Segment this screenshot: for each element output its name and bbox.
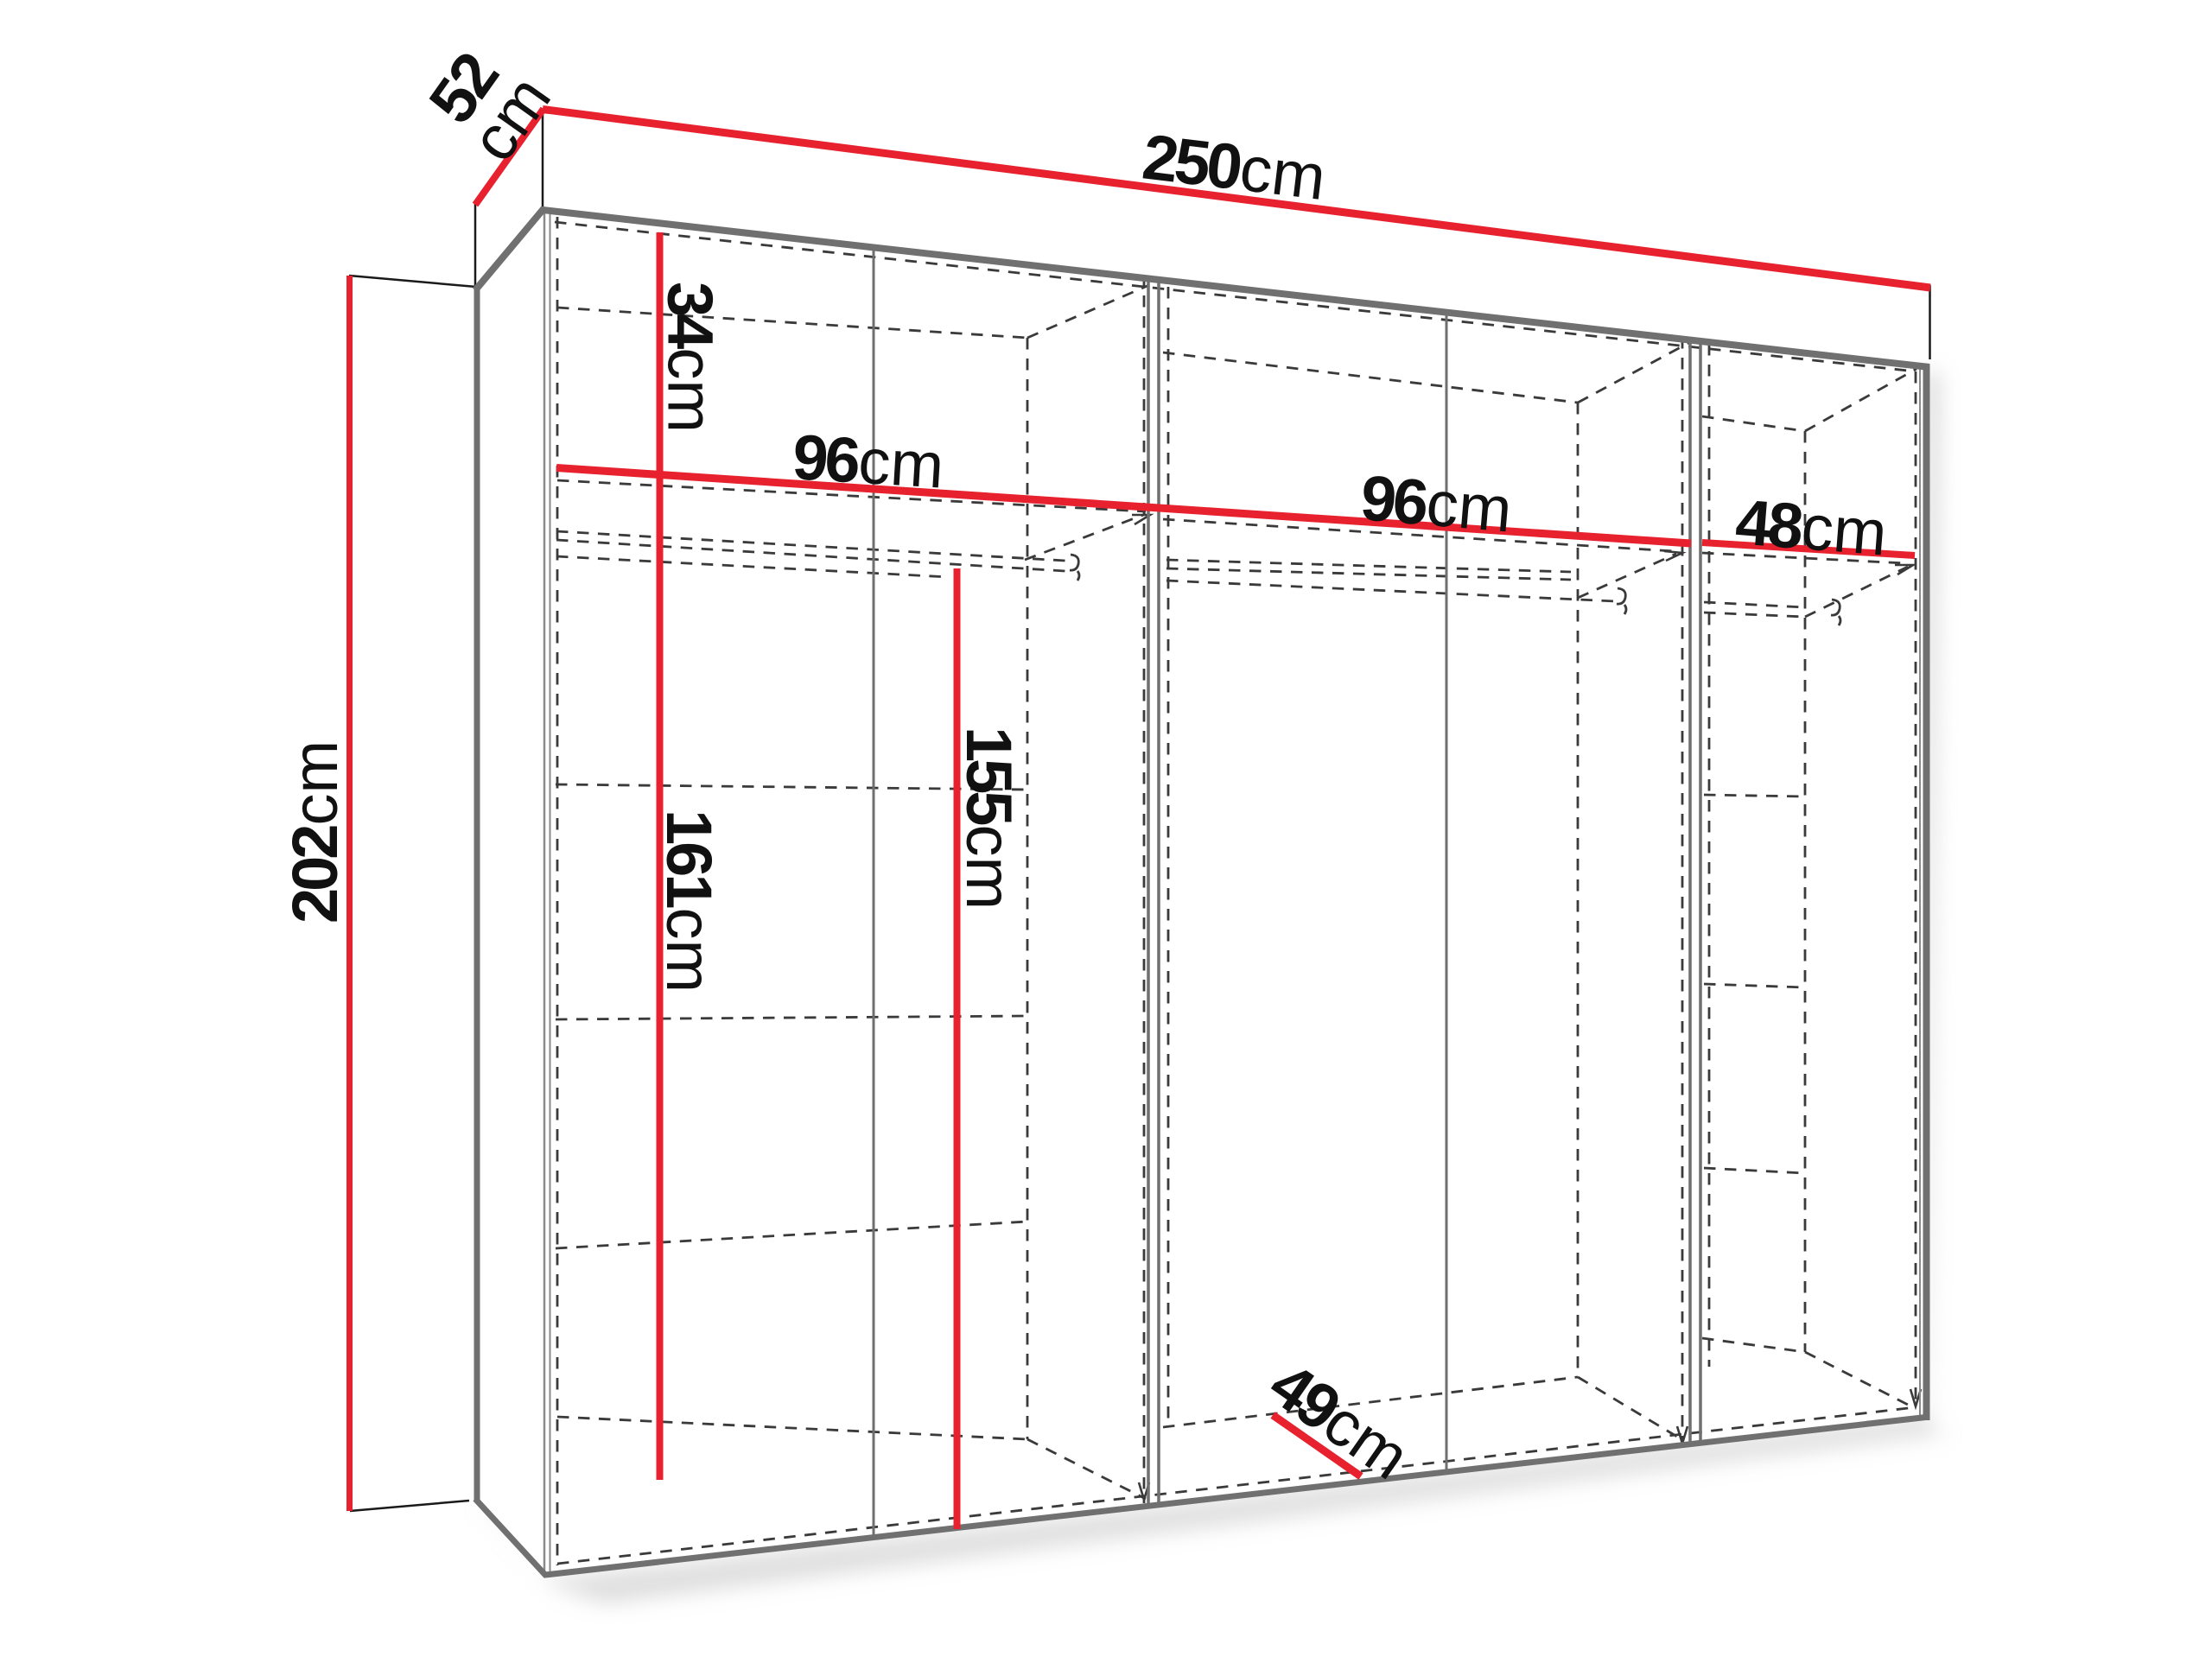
svg-text:34cm: 34cm <box>655 282 727 433</box>
svg-text:48cm: 48cm <box>1733 486 1890 568</box>
svg-text:96cm: 96cm <box>791 421 946 502</box>
svg-text:161cm: 161cm <box>653 809 725 993</box>
svg-text:155cm: 155cm <box>953 727 1025 910</box>
svg-text:202cm: 202cm <box>279 740 351 924</box>
svg-text:96cm: 96cm <box>1358 461 1515 545</box>
